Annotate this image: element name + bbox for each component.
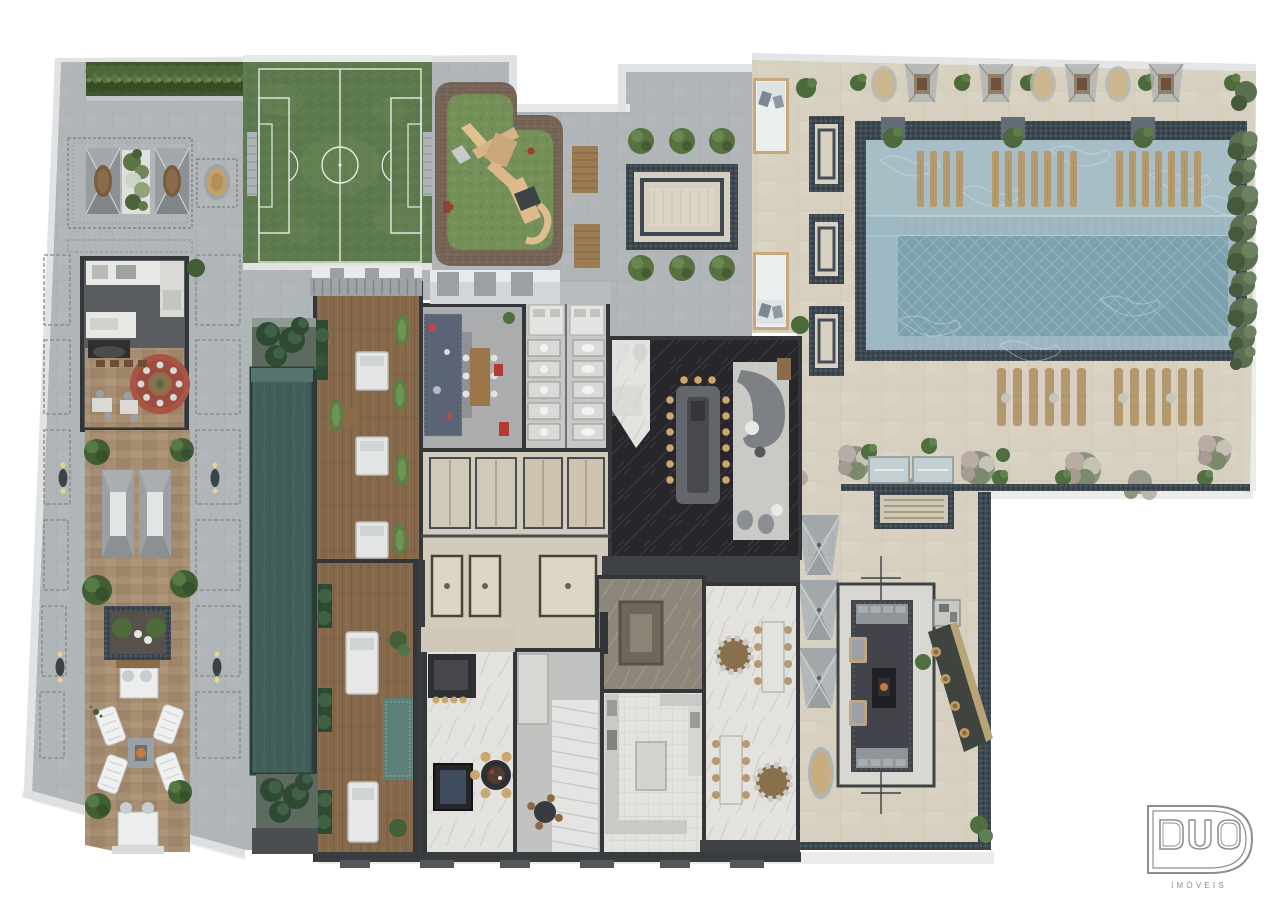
svg-text:IMÓVEIS: IMÓVEIS — [1171, 881, 1227, 890]
